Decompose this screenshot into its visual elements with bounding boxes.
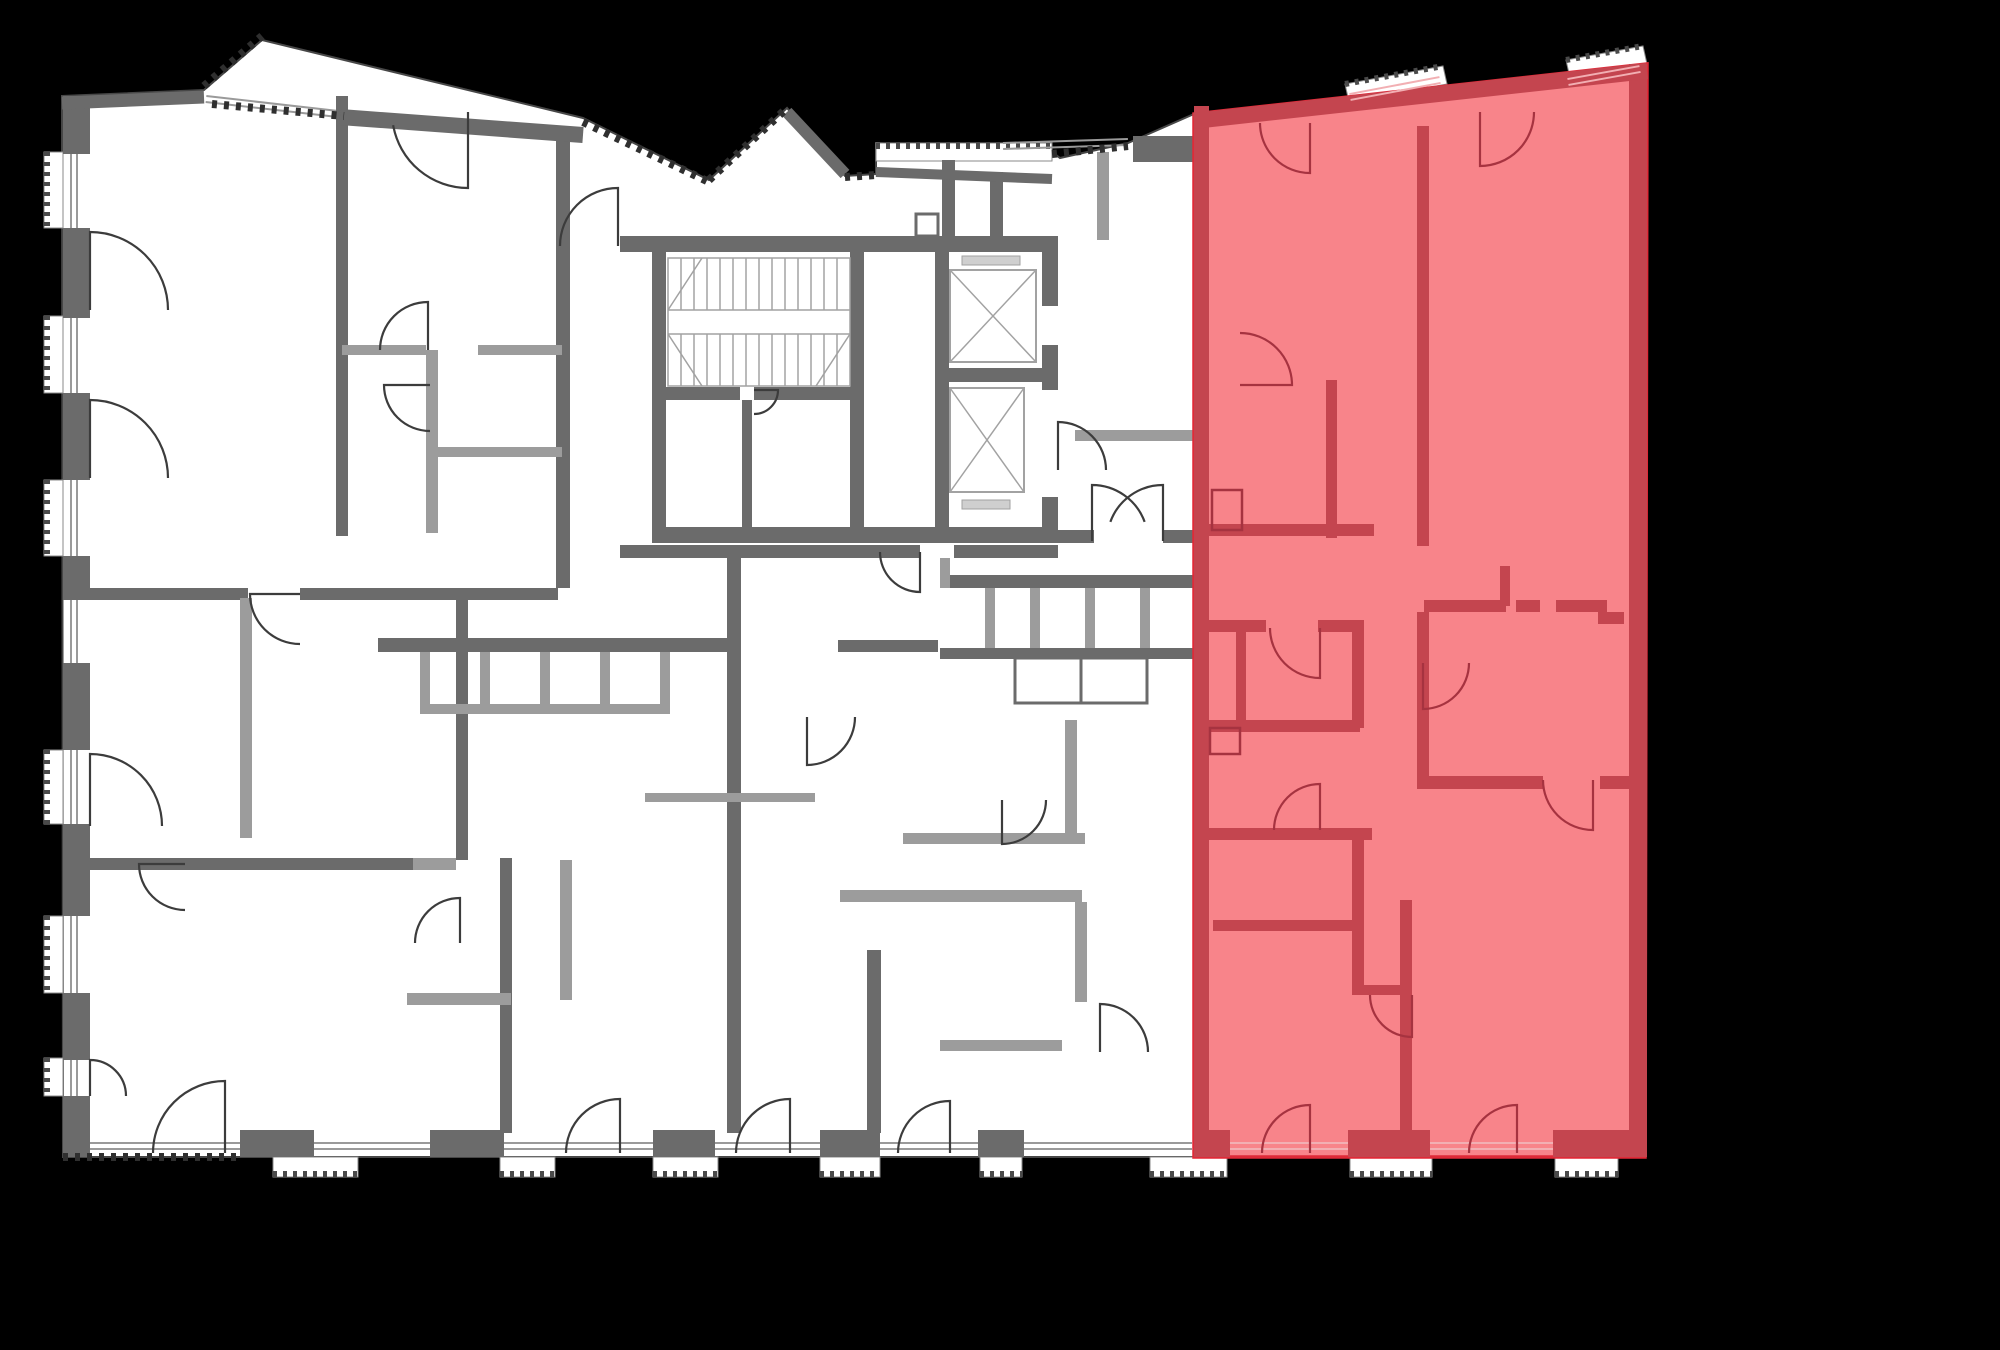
floor-plan-page bbox=[0, 0, 2000, 1350]
floor-plan-canvas bbox=[0, 0, 2000, 1350]
floor-plan-svg bbox=[0, 0, 2000, 1350]
